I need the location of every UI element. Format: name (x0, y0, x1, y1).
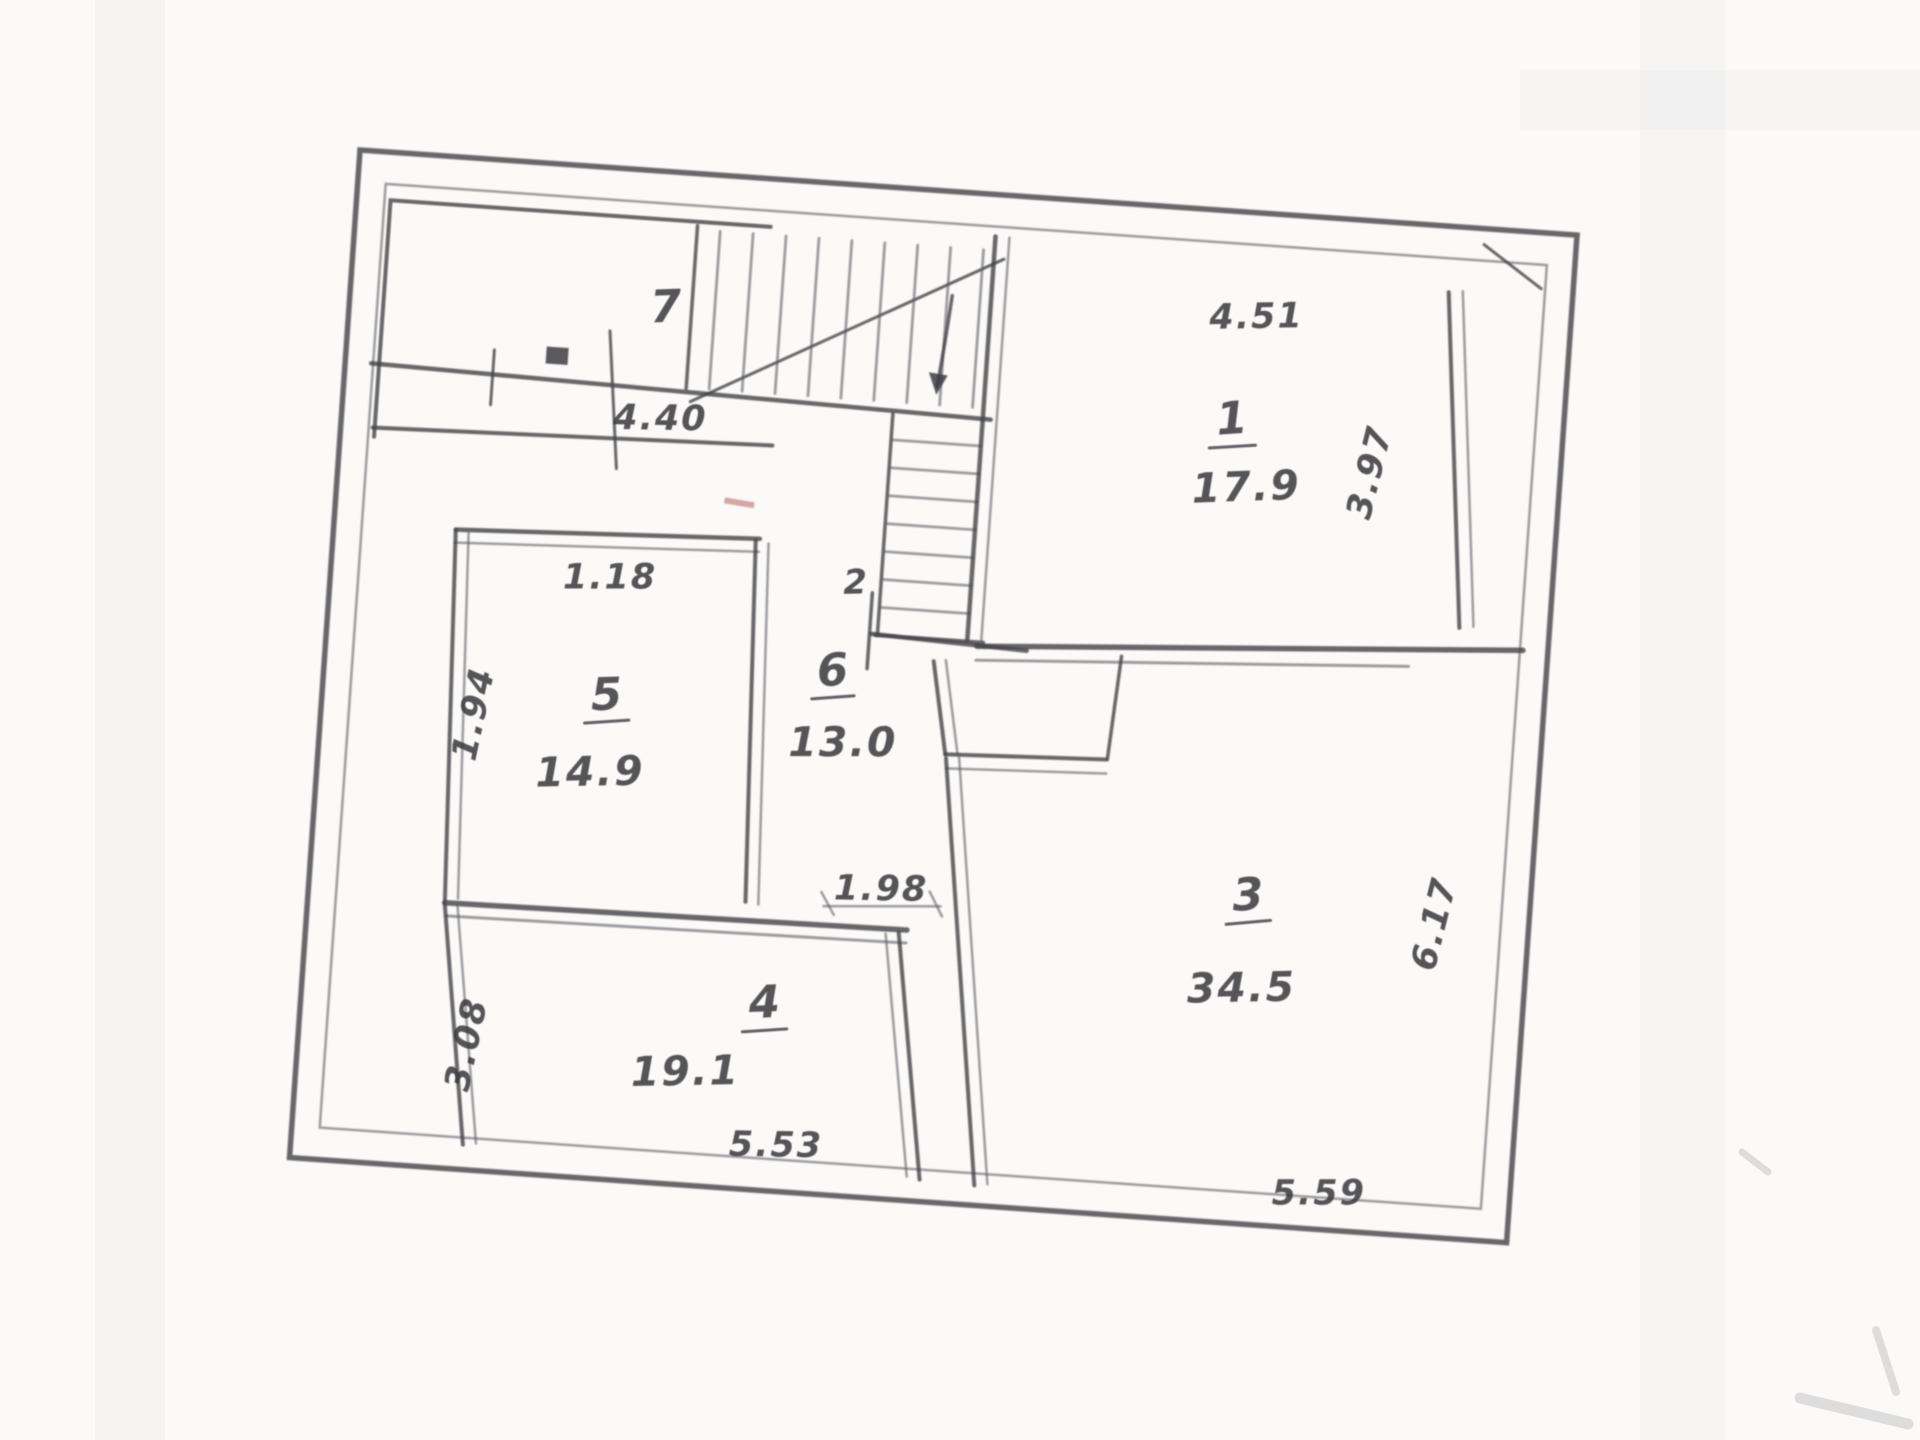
floor-plan-sketch: 7 4.40 4.51 1 17.9 3.97 1.18 1.94 5 14.9… (0, 0, 1920, 1440)
arrowhead (927, 372, 947, 395)
dimension-tick (867, 593, 872, 669)
dim-room1-width: 4.51 (1208, 296, 1304, 338)
dimension-tick (491, 350, 495, 405)
room-4-area: 19.1 (630, 1046, 740, 1096)
plan-group: 7 4.40 4.51 1 17.9 3.97 1.18 1.94 5 14.9… (290, 150, 1577, 1243)
plan-labels: 7 4.40 4.51 1 17.9 3.97 1.18 1.94 5 14.9… (417, 239, 1506, 1226)
dim-room4-bottom: 5.53 (728, 1125, 823, 1167)
room-3-walls (916, 756, 1017, 1186)
dim-room5-side: 1.94 (445, 663, 504, 764)
room-5-area: 14.9 (535, 747, 645, 797)
red-pen-mark (724, 500, 754, 505)
room-2-number: 2 (843, 562, 867, 602)
scan-noise-mark (1742, 1152, 1768, 1172)
room-4-walls (428, 901, 937, 1180)
room-6-number: 6 (815, 643, 850, 698)
room-4-number: 4 (747, 975, 782, 1029)
scan-noise-mark (1800, 1398, 1908, 1424)
scanned-floor-plan-page: 7 4.40 4.51 1 17.9 3.97 1.18 1.94 5 14.9… (0, 0, 1920, 1440)
room-7-walls (365, 200, 1003, 495)
dim-room4-side: 3.08 (438, 994, 497, 1095)
dim-room1-height: 3.97 (1339, 422, 1401, 523)
room-2-walls (861, 593, 1125, 780)
dim-room3-bottom: 5.59 (1272, 1173, 1366, 1213)
room-1-walls (976, 211, 1551, 698)
scan-artifacts (95, 0, 1920, 1440)
room-3-number: 3 (1231, 867, 1266, 922)
room-3-area: 34.5 (1187, 963, 1297, 1013)
dim-top-left-width: 4.40 (612, 398, 708, 440)
scan-noise-mark (1876, 1330, 1896, 1392)
room-1-number: 1 (1214, 391, 1250, 446)
dim-hall-width: 1.98 (834, 868, 929, 910)
stair-direction-arrow (937, 295, 952, 387)
door-mark (546, 347, 569, 365)
room-6-area: 13.0 (788, 718, 897, 766)
room-1-area: 17.9 (1191, 461, 1302, 513)
dim-room5-top: 1.18 (563, 558, 657, 598)
room-7-number: 7 (649, 279, 683, 333)
room-5-number: 5 (590, 667, 624, 721)
dim-room3-side: 6.17 (1404, 873, 1466, 974)
